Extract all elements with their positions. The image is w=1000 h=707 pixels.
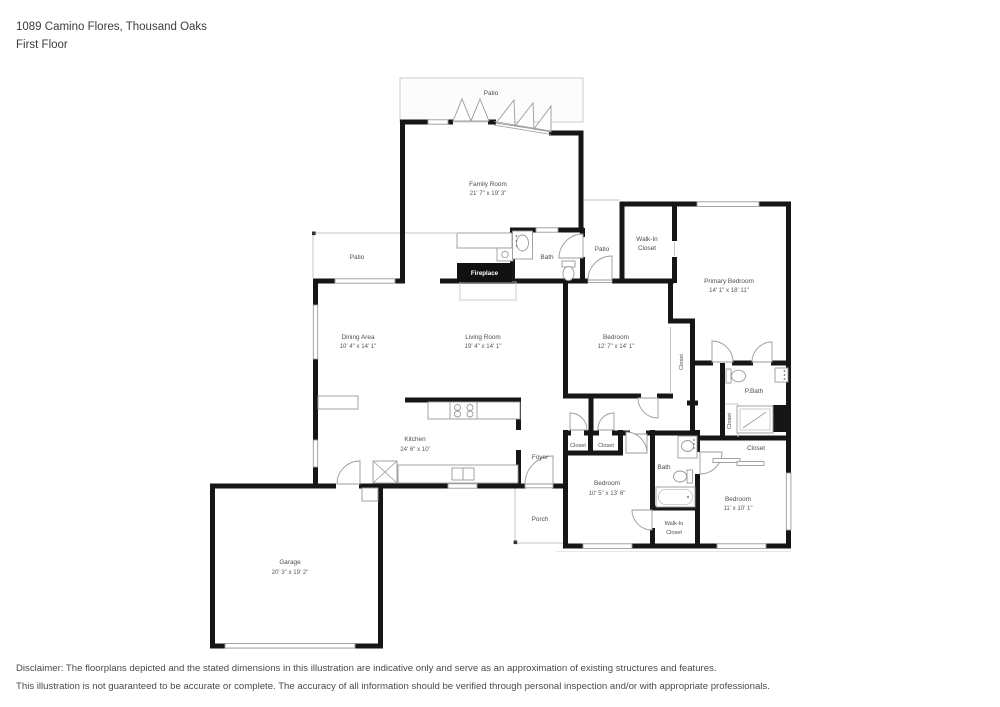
label-bath-bottom: Bath: [657, 464, 671, 471]
garage-step: [362, 488, 378, 501]
windows: [225, 120, 791, 648]
label-living-room: Living Room: [465, 334, 501, 341]
label-closet-br: Closet: [747, 445, 765, 452]
label-bedroom-mid: Bedroom: [603, 334, 629, 341]
floorplan-page: 1089 Camino Flores, Thousand Oaks First …: [0, 0, 1000, 707]
sink-icon: [682, 441, 694, 452]
label-foyer: Foyer: [532, 454, 549, 461]
label-wic-top-1: Walk-In: [636, 236, 658, 243]
dims-primary-bedroom: 14' 1" x 18' 11": [709, 287, 749, 294]
label-patio-mid: Patio: [595, 246, 610, 253]
label-fireplace: Fireplace: [471, 270, 499, 277]
disclaimer-line-2: This illustration is not guaranteed to b…: [16, 681, 770, 692]
sliding-door: [713, 459, 740, 463]
label-porch: Porch: [532, 516, 549, 523]
label-patio-left: Patio: [350, 254, 365, 261]
dims-dining-area: 10' 4" x 14' 1": [340, 343, 377, 350]
toilet-icon: [687, 470, 693, 483]
label-dining-area: Dining Area: [341, 334, 374, 341]
label-closet-2: Closet: [727, 413, 733, 429]
sliding-door: [737, 462, 764, 466]
label-closet-1: Closet: [679, 354, 685, 370]
dims-living-room: 19' 4" x 14' 1": [465, 343, 502, 350]
porch-corner-marker: [514, 541, 518, 545]
label-bedroom-bl: Bedroom: [594, 480, 620, 487]
toilet-icon: [726, 369, 731, 383]
floorplan-svg: Patio Family Room 21' 7" x 19' 3" Patio …: [0, 0, 1000, 707]
wall-mass-block: [773, 405, 790, 432]
kitchen-sink-icon: [452, 468, 463, 480]
sink-icon: [517, 235, 529, 251]
label-patio-top: Patio: [484, 90, 499, 97]
label-wic-top-2: Closet: [638, 245, 656, 252]
dims-kitchen: 24' 6" x 10': [400, 446, 430, 453]
dims-garage: 20' 3" x 19' 2": [272, 569, 309, 576]
label-bedroom-br: Bedroom: [725, 496, 751, 503]
counter: [318, 396, 358, 409]
label-closet-a: Closet: [570, 443, 586, 449]
label-garage: Garage: [279, 559, 301, 566]
patio-top-area: [400, 78, 583, 122]
label-bath-top: Bath: [540, 254, 554, 261]
patio-corner-marker: [312, 232, 316, 236]
disclaimer-line-1: Disclaimer: The floorplans depicted and …: [16, 663, 717, 674]
dims-bedroom-mid: 12' 7" x 14' 1": [598, 343, 635, 350]
stove-icon: [450, 402, 477, 419]
label-family-room: Family Room: [469, 181, 507, 188]
label-p-bath: P.Bath: [745, 388, 764, 395]
label-kitchen: Kitchen: [404, 436, 426, 443]
label-primary-bedroom: Primary Bedroom: [704, 278, 754, 285]
sink-icon: [775, 368, 788, 382]
hearth: [460, 282, 516, 300]
counter: [457, 233, 512, 248]
label-wic-bottom-1: Walk-In: [665, 521, 684, 527]
dims-family-room: 21' 7" x 19' 3": [470, 190, 507, 197]
dims-bedroom-br: 11' x 10' 1": [723, 505, 752, 512]
garage-door: [225, 644, 355, 649]
label-wic-bottom-2: Closet: [666, 530, 682, 536]
dims-bedroom-bl: 10' 5" x 13' 6": [589, 490, 626, 497]
label-closet-b: Closet: [598, 443, 614, 449]
